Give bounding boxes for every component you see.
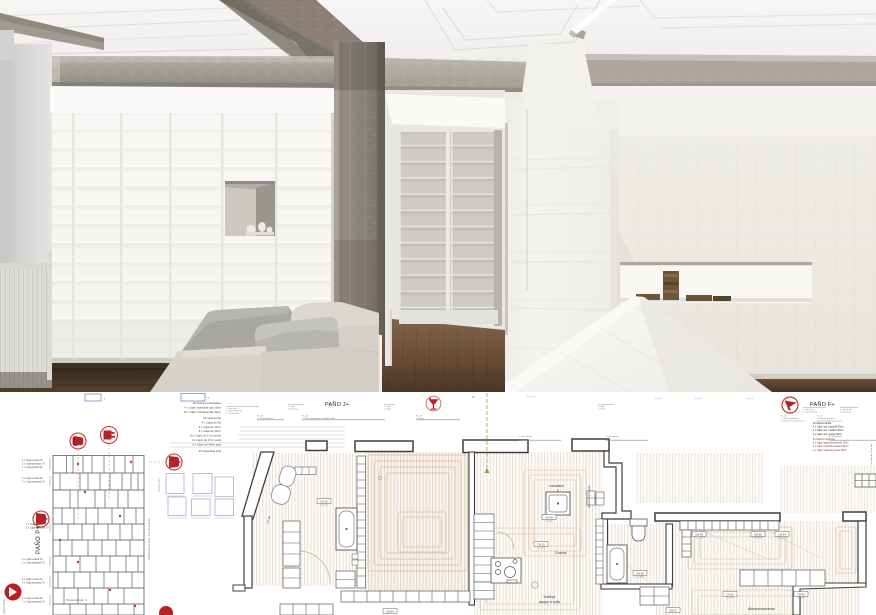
svg-text:1 x lateral der kg: 1 x lateral der kg [803,410,817,413]
svg-text:Trolleys: Trolleys [543,595,556,599]
svg-text:1 x Caja apaisada 70: 1 x Caja apaisada 70 [22,601,45,604]
svg-text:cajas blanc: cajas blanc [754,538,763,540]
svg-text:Almacén ropa sucia: Almacén ropa sucia [588,485,591,508]
svg-text:4 x Cajón vert. grande 90cm: 4 x Cajón vert. grande 90cm [813,433,842,436]
svg-text:1 x base kg: 1 x base kg [288,408,298,410]
svg-text:b.g 0.6: b.g 0.6 [747,398,754,400]
svg-text:Lavadero: Lavadero [549,484,564,488]
svg-text:Partedor hab. h: Partedor hab. h [66,598,87,602]
svg-text:cajas blanc: cajas blanc [537,548,546,550]
svg-text:CH 38: CH 38 [636,571,644,575]
svg-text:CH 34: CH 34 [778,532,786,536]
svg-text:8 x Cajas de flat: 8 x Cajas de flat [202,420,222,424]
svg-text:cajas blanc: cajas blanc [636,577,645,579]
svg-text:4 x Cajón izquierda mediano 90: 4 x Cajón izquierda mediano 90cm [813,445,848,448]
svg-text:1 x base: 1 x base [384,408,391,410]
svg-text:CH 09: CH 09 [545,515,553,519]
svg-text:1 x frente batiente gran fondo: 1 x frente batiente gran fondo lacado [302,417,335,420]
svg-text:cajas blanc: cajas blanc [545,521,554,523]
svg-text:4 x Cajón izquierda pequeño 70: 4 x Cajón izquierda pequeño 70cm [813,442,849,445]
svg-text:36 Capacidad total: 36 Capacidad total [199,449,222,453]
svg-text:1 x Caja grande 90: 1 x Caja grande 90 [22,466,43,469]
svg-text:CH 03: CH 03 [797,592,805,596]
svg-text:48 Cajones individuales: 48 Cajones individuales [193,401,222,405]
svg-text:PAÑO P+: PAÑO P+ [35,525,42,554]
svg-text:PAÑO J+: PAÑO J+ [325,401,349,408]
svg-text:1 x frente batiente kg: 1 x frente batiente kg [781,417,799,420]
svg-text:CH 36: CH 36 [695,532,703,536]
svg-text:2 x Cajón de 17cm extra: 2 x Cajón de 17cm extra [192,438,222,442]
svg-text:1 x frente: 1 x frente [416,417,425,420]
svg-text:cajas blanc: cajas blanc [778,538,787,540]
svg-text:6 x Cajas de 10cm: 6 x Cajas de 10cm [199,425,222,429]
svg-text:46 Cajones izquierda: 46 Cajones izquierda [813,438,835,441]
svg-text:8 x Cajas de 30cm: 8 x Cajas de 30cm [199,429,222,433]
svg-text:cajas blanc: cajas blanc [320,505,329,507]
svg-text:1 x M. estante: 1 x M. estante [519,435,532,438]
svg-text:1 x base: 1 x base [598,408,605,410]
svg-text:Subestructura horiz. tras las: Subestructura horiz. tras las puertas [147,518,151,560]
svg-text:cajas blanc: cajas blanc [695,538,704,540]
svg-text:CH 35: CH 35 [754,532,762,536]
svg-text:b.g 0.6: b.g 0.6 [787,398,794,400]
svg-text:1 x frente batiente kg: 1 x frente batiente kg [817,417,835,420]
svg-text:CH 10: CH 10 [537,542,545,546]
svg-text:nº x Cajón individual caja 10c: nº x Cajón individual caja 10cm [184,405,222,409]
svg-text:6 x Cajón de 40cm tapa: 6 x Cajón de 40cm tapa [193,442,222,446]
svg-text:CH 07: CH 07 [669,608,677,612]
svg-text:2 x Caja apaisada 70: 2 x Caja apaisada 70 [22,562,45,565]
svg-text:1 x lateral kg: 1 x lateral kg [840,410,851,413]
svg-text:p.y.e 1.20: p.y.e 1.20 [527,396,537,398]
svg-text:b.g 0.6: b.g 0.6 [655,398,662,400]
svg-text:CH 04: CH 04 [386,609,394,613]
svg-text:1 x M. estante: 1 x M. estante [606,435,619,438]
svg-text:16 x Cajón de 17cm smart: 16 x Cajón de 17cm smart [190,434,222,438]
svg-text:1 x Cajón de 17cm tipo: 1 x Cajón de 17cm tipo [870,443,873,466]
svg-text:1 x frente batiente: 1 x frente batiente [257,417,274,420]
svg-text:2 x Caja apaisada 70: 2 x Caja apaisada 70 [22,481,45,484]
svg-text:b.g 0.6: b.g 0.6 [695,398,702,400]
svg-text:cajas blanc: cajas blanc [797,598,806,600]
svg-text:4 x Cajón vert. pequeño 70cm: 4 x Cajón vert. pequeño 70cm [813,426,844,429]
svg-text:CH 12: CH 12 [320,499,328,503]
svg-text:apoyo a sofá: apoyo a sofá [539,600,560,604]
svg-text:Ajuste zócalo: Ajuste zócalo [2,598,6,614]
svg-text:16 x Cajón individual alto 30c: 16 x Cajón individual alto 30cm [184,410,222,414]
svg-text:CH 02: CH 02 [726,592,734,596]
svg-text:cajas blanc: cajas blanc [726,598,735,600]
svg-text:PAÑO F+: PAÑO F+ [810,401,835,408]
svg-text:46 Cajones arriba: 46 Cajones arriba [813,422,832,425]
svg-text:34 Cajones flat: 34 Cajones flat [203,416,221,420]
svg-text:Cocina: Cocina [555,551,566,555]
svg-text:4 x Cajón vert. mediano 90cm: 4 x Cajón vert. mediano 90cm [813,429,844,432]
svg-text:3 x Caja apaisada 70: 3 x Caja apaisada 70 [22,582,45,585]
svg-text:Almacenamiento: Almacenamiento [748,607,775,611]
svg-text:4 x Cajón izquierda grande 90c: 4 x Cajón izquierda grande 90cm [813,449,847,452]
svg-text:1 x zócalo base: 1 x zócalo base [226,413,239,415]
